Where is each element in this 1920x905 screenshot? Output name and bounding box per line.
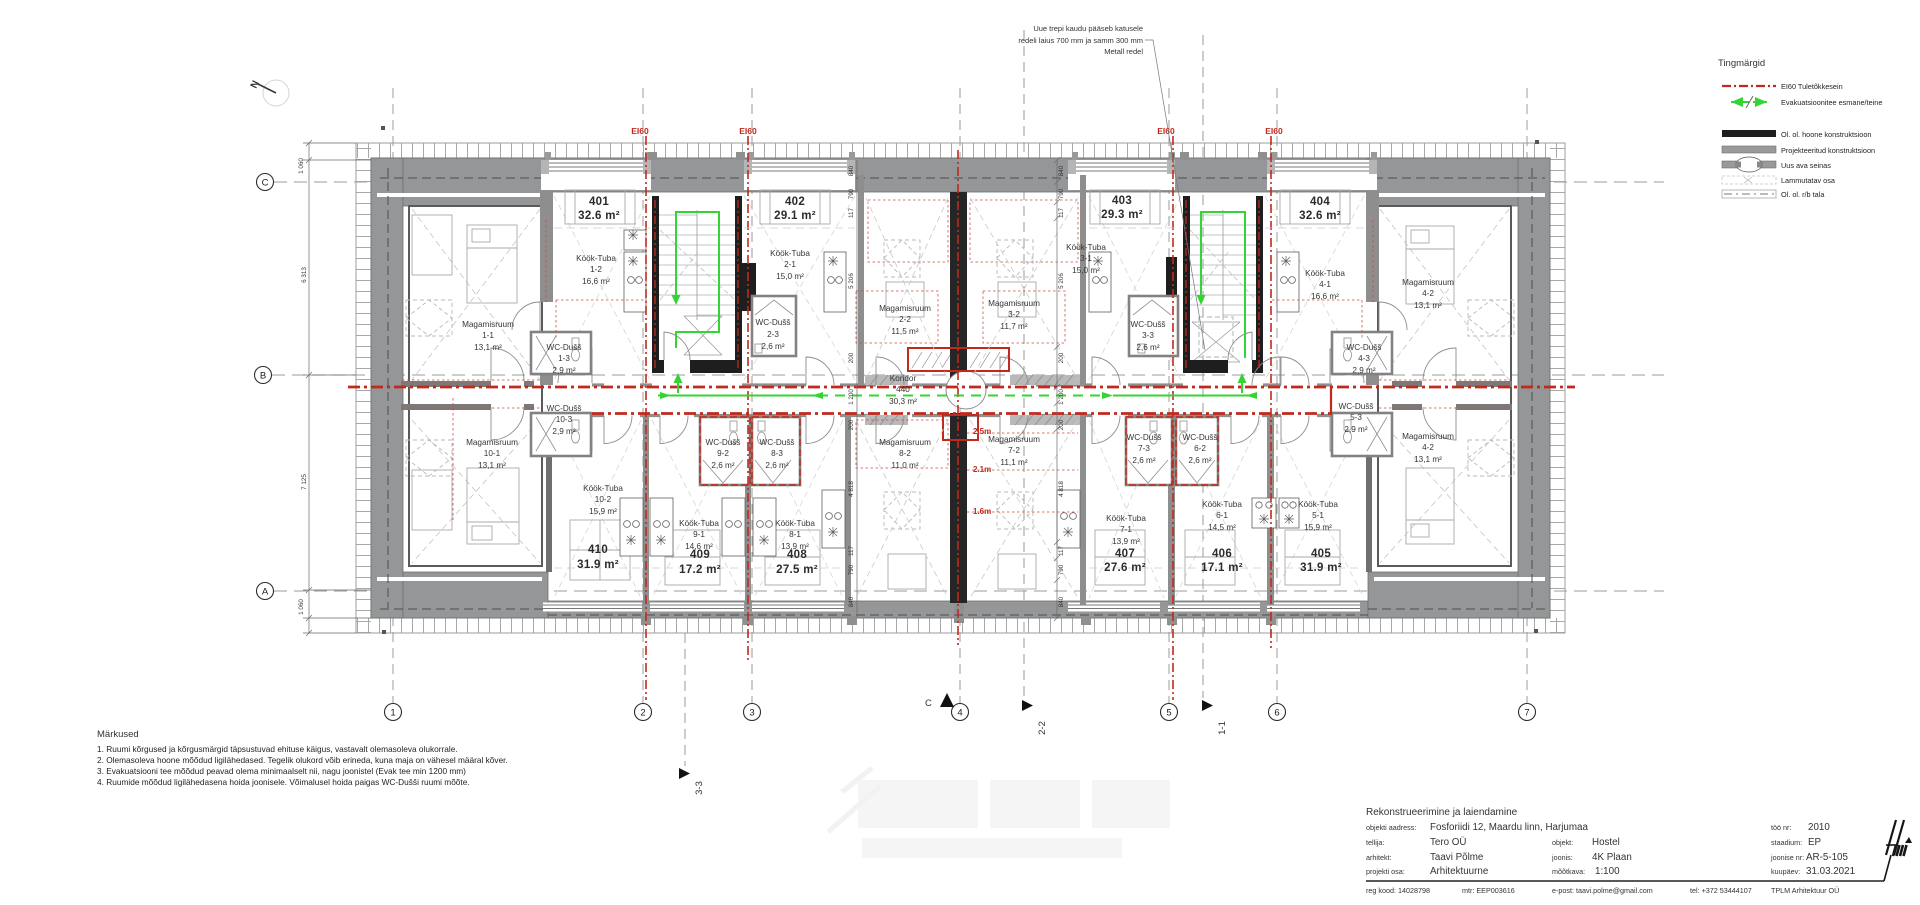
svg-text:407: 407 bbox=[1115, 548, 1135, 560]
svg-text:5-3: 5-3 bbox=[1350, 413, 1362, 422]
svg-text:objekti aadress:: objekti aadress: bbox=[1366, 823, 1416, 832]
svg-text:408: 408 bbox=[787, 549, 807, 561]
svg-text:2,6 m²: 2,6 m² bbox=[761, 342, 784, 351]
svg-text:1 200: 1 200 bbox=[1058, 389, 1065, 405]
svg-text:11,1 m²: 11,1 m² bbox=[1000, 458, 1027, 467]
svg-text:Magamisruum: Magamisruum bbox=[462, 320, 514, 329]
svg-text:4 818: 4 818 bbox=[848, 481, 855, 497]
svg-text:WC-Dušš: WC-Dušš bbox=[705, 438, 740, 447]
svg-text:Ol. ol. r/b tala: Ol. ol. r/b tala bbox=[1781, 190, 1825, 199]
svg-text:2,6 m²: 2,6 m² bbox=[1132, 456, 1155, 465]
svg-text:10-1: 10-1 bbox=[484, 449, 501, 458]
svg-text:1 060: 1 060 bbox=[298, 599, 305, 615]
svg-text:9-1: 9-1 bbox=[693, 530, 705, 539]
svg-text:projekti osa:: projekti osa: bbox=[1366, 867, 1405, 876]
svg-text:EI60: EI60 bbox=[1157, 126, 1175, 136]
svg-text:7-1: 7-1 bbox=[1120, 525, 1132, 534]
svg-text:13,1 m²: 13,1 m² bbox=[478, 461, 506, 470]
svg-text:tellija:: tellija: bbox=[1366, 838, 1384, 847]
svg-text:2,6 m²: 2,6 m² bbox=[711, 461, 734, 470]
svg-text:200: 200 bbox=[1058, 419, 1065, 430]
svg-text:2010: 2010 bbox=[1808, 822, 1830, 833]
svg-text:16,6 m²: 16,6 m² bbox=[582, 277, 610, 286]
svg-text:9-2: 9-2 bbox=[717, 449, 729, 458]
svg-text:840: 840 bbox=[1058, 596, 1065, 607]
svg-text:5: 5 bbox=[1166, 708, 1171, 719]
svg-text:kuupäev:: kuupäev: bbox=[1771, 867, 1800, 876]
svg-text:406: 406 bbox=[1212, 548, 1232, 560]
svg-text:objekt:: objekt: bbox=[1552, 838, 1573, 847]
svg-text:joonis:: joonis: bbox=[1551, 853, 1573, 862]
svg-text:8-1: 8-1 bbox=[789, 530, 801, 539]
svg-text:440: 440 bbox=[896, 385, 910, 394]
svg-text:405: 405 bbox=[1311, 548, 1331, 560]
svg-text:1-1: 1-1 bbox=[482, 331, 494, 340]
svg-text:200: 200 bbox=[848, 419, 855, 430]
svg-text:410: 410 bbox=[588, 544, 608, 556]
svg-text:11,5 m²: 11,5 m² bbox=[891, 327, 918, 336]
svg-text:32.6 m²: 32.6 m² bbox=[578, 210, 620, 222]
svg-text:4-3: 4-3 bbox=[1358, 354, 1370, 363]
svg-text:5 206: 5 206 bbox=[848, 273, 855, 289]
svg-text:3-1: 3-1 bbox=[1080, 254, 1092, 263]
svg-text:Koridor: Koridor bbox=[890, 374, 917, 383]
svg-text:200: 200 bbox=[1058, 352, 1065, 363]
svg-text:3-3: 3-3 bbox=[1142, 331, 1154, 340]
svg-text:EP: EP bbox=[1808, 837, 1822, 848]
svg-text:staadium:: staadium: bbox=[1771, 838, 1802, 847]
svg-text:2-3: 2-3 bbox=[767, 330, 779, 339]
svg-text:31.9 m²: 31.9 m² bbox=[1300, 562, 1342, 574]
svg-text:WC-Dušš: WC-Dušš bbox=[1338, 402, 1373, 411]
svg-text:WC-Dušš: WC-Dušš bbox=[1346, 343, 1381, 352]
svg-text:Magamisruum: Magamisruum bbox=[1402, 432, 1454, 441]
svg-text:Magamisruum: Magamisruum bbox=[1402, 278, 1454, 287]
svg-text:1-3: 1-3 bbox=[558, 354, 570, 363]
svg-text:Tingmärgid: Tingmärgid bbox=[1718, 58, 1765, 69]
svg-text:4-2: 4-2 bbox=[1422, 443, 1434, 452]
svg-text:13,1 m²: 13,1 m² bbox=[474, 343, 502, 352]
svg-text:8-3: 8-3 bbox=[771, 449, 783, 458]
svg-text:6-1: 6-1 bbox=[1216, 511, 1228, 520]
svg-text:Köök-Tuba: Köök-Tuba bbox=[1066, 243, 1106, 252]
svg-text:1 060: 1 060 bbox=[298, 158, 305, 174]
svg-text:4: 4 bbox=[957, 708, 962, 719]
svg-text:13,1 m²: 13,1 m² bbox=[1414, 455, 1442, 464]
svg-text:Rekonstrueerimine ja laiendami: Rekonstrueerimine ja laiendamine bbox=[1366, 807, 1518, 818]
svg-text:Tero OÜ: Tero OÜ bbox=[1430, 837, 1466, 848]
svg-text:2-2: 2-2 bbox=[1037, 721, 1048, 735]
svg-text:mõõtkava:: mõõtkava: bbox=[1552, 867, 1585, 876]
svg-text:WC-Dušš: WC-Dušš bbox=[759, 438, 794, 447]
svg-text:117: 117 bbox=[848, 545, 855, 556]
svg-text:EI60: EI60 bbox=[739, 126, 757, 136]
svg-text:1-1: 1-1 bbox=[1217, 721, 1228, 735]
svg-text:3: 3 bbox=[749, 708, 754, 719]
svg-text:reg kood: 14028798: reg kood: 14028798 bbox=[1366, 886, 1430, 895]
svg-text:27.6 m²: 27.6 m² bbox=[1104, 562, 1146, 574]
svg-text:10-3: 10-3 bbox=[556, 415, 573, 424]
svg-text:mtr: EEP003616: mtr: EEP003616 bbox=[1462, 886, 1515, 895]
svg-text:2.1m: 2.1m bbox=[973, 465, 991, 474]
svg-text:6-2: 6-2 bbox=[1194, 444, 1206, 453]
svg-text:1-2: 1-2 bbox=[590, 265, 602, 274]
svg-text:790: 790 bbox=[848, 188, 855, 199]
svg-text:3. Evakuatsiooni tee mõõdud pe: 3. Evakuatsiooni tee mõõdud peavad olema… bbox=[97, 766, 466, 776]
svg-text:4K Plaan: 4K Plaan bbox=[1592, 852, 1632, 863]
svg-text:15,0 m²: 15,0 m² bbox=[776, 272, 804, 281]
svg-text:WC-Dušš: WC-Dušš bbox=[1130, 320, 1165, 329]
svg-text:2-2: 2-2 bbox=[899, 315, 911, 324]
svg-text:5-1: 5-1 bbox=[1312, 511, 1324, 520]
svg-text:2,9 m²: 2,9 m² bbox=[552, 427, 575, 436]
svg-text:790: 790 bbox=[1058, 188, 1065, 199]
svg-text:1: 1 bbox=[390, 708, 395, 719]
svg-text:2-1: 2-1 bbox=[784, 260, 796, 269]
svg-text:B: B bbox=[260, 371, 266, 382]
svg-text:Hostel: Hostel bbox=[1592, 837, 1620, 848]
svg-text:Lammutatav osa: Lammutatav osa bbox=[1781, 176, 1836, 185]
svg-text:Projekteeritud konstruktsioon: Projekteeritud konstruktsioon bbox=[1781, 146, 1875, 155]
svg-text:7: 7 bbox=[1524, 708, 1529, 719]
svg-text:2,9 m²: 2,9 m² bbox=[1344, 425, 1367, 434]
svg-text:29.1 m²: 29.1 m² bbox=[774, 210, 816, 222]
svg-text:3-2: 3-2 bbox=[1008, 310, 1020, 319]
svg-text:2,6 m²: 2,6 m² bbox=[1136, 343, 1159, 352]
svg-text:Magamisruum: Magamisruum bbox=[988, 435, 1040, 444]
svg-text:Köök-Tuba: Köök-Tuba bbox=[679, 519, 719, 528]
svg-text:1:100: 1:100 bbox=[1595, 866, 1620, 877]
svg-text:3-3: 3-3 bbox=[694, 781, 705, 795]
svg-text:4. Ruumide mõõdud ligilähedase: 4. Ruumide mõõdud ligilähedasena hoida j… bbox=[97, 777, 470, 787]
svg-text:6 313: 6 313 bbox=[301, 267, 308, 283]
svg-text:Märkused: Märkused bbox=[97, 729, 139, 740]
svg-text:5 206: 5 206 bbox=[1058, 273, 1065, 289]
svg-text:WC-Dušš: WC-Dušš bbox=[755, 318, 790, 327]
svg-text:404: 404 bbox=[1310, 196, 1330, 208]
svg-text:15,9 m²: 15,9 m² bbox=[1304, 523, 1332, 532]
svg-text:N: N bbox=[249, 79, 262, 90]
svg-text:WC-Dušš: WC-Dušš bbox=[546, 343, 581, 352]
svg-text:arhitekt:: arhitekt: bbox=[1366, 853, 1392, 862]
svg-text:tel: +372 53444107: tel: +372 53444107 bbox=[1690, 886, 1752, 895]
svg-text:Köök-Tuba: Köök-Tuba bbox=[775, 519, 815, 528]
svg-text:32.6 m²: 32.6 m² bbox=[1299, 210, 1341, 222]
svg-text:200: 200 bbox=[848, 352, 855, 363]
svg-text:Ol. ol. hoone konstruktsioon: Ol. ol. hoone konstruktsioon bbox=[1781, 130, 1871, 139]
svg-text:EI60: EI60 bbox=[1265, 126, 1283, 136]
svg-text:C: C bbox=[262, 178, 269, 189]
svg-text:Köök-Tuba: Köök-Tuba bbox=[1202, 500, 1242, 509]
svg-text:Metall redel: Metall redel bbox=[1104, 47, 1143, 56]
svg-text:7 125: 7 125 bbox=[301, 474, 308, 490]
svg-text:Taavi Põlme: Taavi Põlme bbox=[1430, 852, 1484, 863]
svg-text:A: A bbox=[262, 587, 269, 598]
svg-text:joonise nr:: joonise nr: bbox=[1770, 853, 1804, 862]
svg-text:2: 2 bbox=[640, 708, 645, 719]
svg-text:10-2: 10-2 bbox=[595, 495, 612, 504]
svg-text:EI60: EI60 bbox=[631, 126, 649, 136]
svg-text:C: C bbox=[925, 698, 932, 709]
svg-text:4-2: 4-2 bbox=[1422, 289, 1434, 298]
svg-text:Köök-Tuba: Köök-Tuba bbox=[1305, 269, 1345, 278]
svg-text:17.2 m²: 17.2 m² bbox=[679, 564, 721, 576]
svg-text:Köök-Tuba: Köök-Tuba bbox=[1106, 514, 1146, 523]
svg-text:840: 840 bbox=[1058, 165, 1065, 176]
svg-text:1.6m: 1.6m bbox=[973, 507, 991, 516]
svg-text:401: 401 bbox=[589, 196, 609, 208]
svg-text:TPLM Arhitektuur OÜ: TPLM Arhitektuur OÜ bbox=[1771, 886, 1839, 895]
svg-text:4-1: 4-1 bbox=[1319, 280, 1331, 289]
svg-text:Köök-Tuba: Köök-Tuba bbox=[583, 484, 623, 493]
svg-text:840: 840 bbox=[848, 596, 855, 607]
svg-text:Arhitektuurne: Arhitektuurne bbox=[1430, 866, 1489, 877]
svg-text:1 200: 1 200 bbox=[848, 389, 855, 405]
svg-text:13,9 m²: 13,9 m² bbox=[1112, 537, 1140, 546]
svg-text:840: 840 bbox=[848, 165, 855, 176]
svg-text:töö nr:: töö nr: bbox=[1771, 823, 1791, 832]
svg-text:1. Ruumi kõrgused ja kõrgusmär: 1. Ruumi kõrgused ja kõrgusmärgid täpsus… bbox=[97, 744, 458, 754]
svg-text:409: 409 bbox=[690, 549, 710, 561]
svg-text:11,7 m²: 11,7 m² bbox=[1000, 322, 1027, 331]
svg-text:29.3 m²: 29.3 m² bbox=[1101, 209, 1143, 221]
svg-text:7-3: 7-3 bbox=[1138, 444, 1150, 453]
svg-text:31.9 m²: 31.9 m² bbox=[577, 559, 619, 571]
svg-text:790: 790 bbox=[1058, 564, 1065, 575]
svg-text:13,1 m²: 13,1 m² bbox=[1414, 301, 1442, 310]
svg-text:117: 117 bbox=[848, 207, 855, 218]
svg-text:30,3 m²: 30,3 m² bbox=[889, 397, 917, 406]
svg-text:16,6 m²: 16,6 m² bbox=[1311, 292, 1339, 301]
svg-text:Magamisruum: Magamisruum bbox=[988, 299, 1040, 308]
svg-text:Fosforiidi 12, Maardu linn, Ha: Fosforiidi 12, Maardu linn, Harjumaa bbox=[1430, 822, 1588, 833]
svg-text:redeli laius 700 mm ja samm 30: redeli laius 700 mm ja samm 300 mm bbox=[1018, 36, 1143, 45]
svg-text:Köök-Tuba: Köök-Tuba bbox=[770, 249, 810, 258]
svg-text:117: 117 bbox=[1058, 207, 1065, 218]
svg-text:WC-Dušš: WC-Dušš bbox=[546, 404, 581, 413]
svg-text:2,9 m²: 2,9 m² bbox=[1352, 366, 1375, 375]
svg-text:EI60 Tuletõkkesein: EI60 Tuletõkkesein bbox=[1781, 82, 1843, 91]
svg-text:Köök-Tuba: Köök-Tuba bbox=[1298, 500, 1338, 509]
svg-text:27.5 m²: 27.5 m² bbox=[776, 564, 818, 576]
svg-text:11,0 m²: 11,0 m² bbox=[891, 461, 918, 470]
svg-text:8-2: 8-2 bbox=[899, 449, 911, 458]
svg-text:15,9 m²: 15,9 m² bbox=[589, 507, 617, 516]
svg-text:Evakuatsioonitee esmane/teine: Evakuatsioonitee esmane/teine bbox=[1781, 98, 1882, 107]
svg-text:Uue trepi kaudu pääseb katusel: Uue trepi kaudu pääseb katusele bbox=[1033, 24, 1143, 33]
svg-text:790: 790 bbox=[848, 564, 855, 575]
svg-text:402: 402 bbox=[785, 196, 805, 208]
svg-text:2. Olemasoleva hoone mõõdud li: 2. Olemasoleva hoone mõõdud ligilähedase… bbox=[97, 755, 508, 765]
svg-text:Magamisruum: Magamisruum bbox=[466, 438, 518, 447]
svg-text:7-2: 7-2 bbox=[1008, 446, 1020, 455]
svg-text:14,5 m²: 14,5 m² bbox=[1208, 523, 1236, 532]
svg-text:6: 6 bbox=[1274, 708, 1279, 719]
svg-text:4 818: 4 818 bbox=[1058, 481, 1065, 497]
svg-text:17.1 m²: 17.1 m² bbox=[1201, 562, 1243, 574]
svg-text:31.03.2021: 31.03.2021 bbox=[1806, 866, 1855, 877]
svg-text:WC-Dušš: WC-Dušš bbox=[1182, 433, 1217, 442]
svg-text:AR-5-105: AR-5-105 bbox=[1806, 852, 1848, 863]
svg-text:2,9 m²: 2,9 m² bbox=[552, 366, 575, 375]
svg-text:403: 403 bbox=[1112, 195, 1132, 207]
svg-text:15,0 m²: 15,0 m² bbox=[1072, 266, 1100, 275]
svg-text:e-post: taavi.polme@gmail.com: e-post: taavi.polme@gmail.com bbox=[1552, 886, 1653, 895]
svg-text:WC-Dušš: WC-Dušš bbox=[1126, 433, 1161, 442]
svg-text:2,6 m²: 2,6 m² bbox=[1188, 456, 1211, 465]
svg-text:Köök-Tuba: Köök-Tuba bbox=[576, 254, 616, 263]
svg-text:2,6 m²: 2,6 m² bbox=[765, 461, 788, 470]
svg-text:Uus ava seinas: Uus ava seinas bbox=[1781, 161, 1831, 170]
svg-text:Magamisruum: Magamisruum bbox=[879, 438, 931, 447]
svg-text:117: 117 bbox=[1058, 545, 1065, 556]
svg-text:Magamisruum: Magamisruum bbox=[879, 304, 931, 313]
